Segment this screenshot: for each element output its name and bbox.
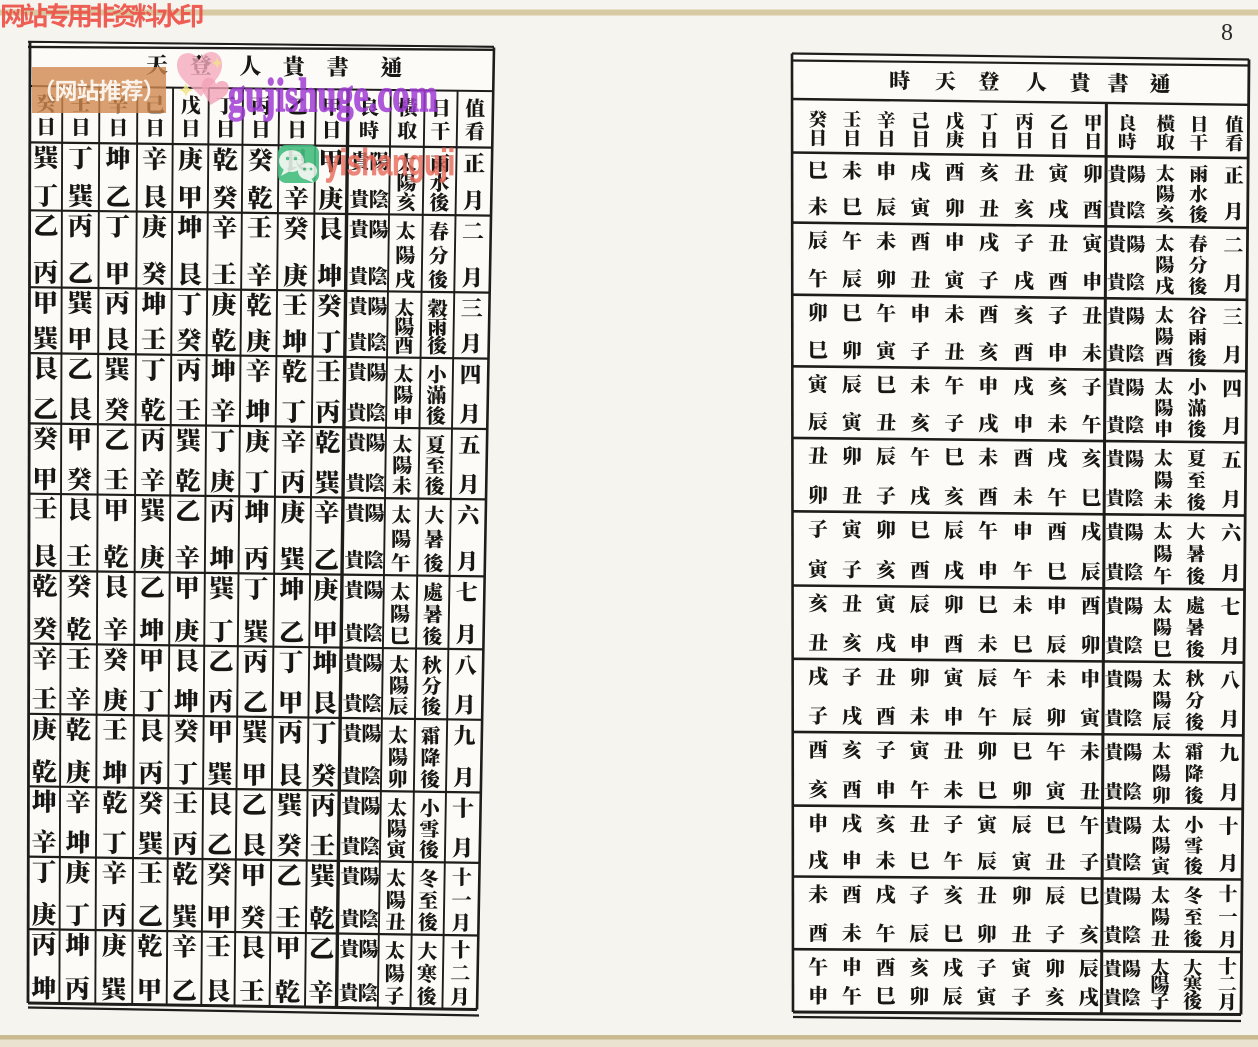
svg-text:yishanguji: yishanguji <box>325 142 455 183</box>
svg-text:8: 8 <box>1221 20 1233 46</box>
svg-text:gujishuge.com: gujishuge.com <box>228 69 438 122</box>
